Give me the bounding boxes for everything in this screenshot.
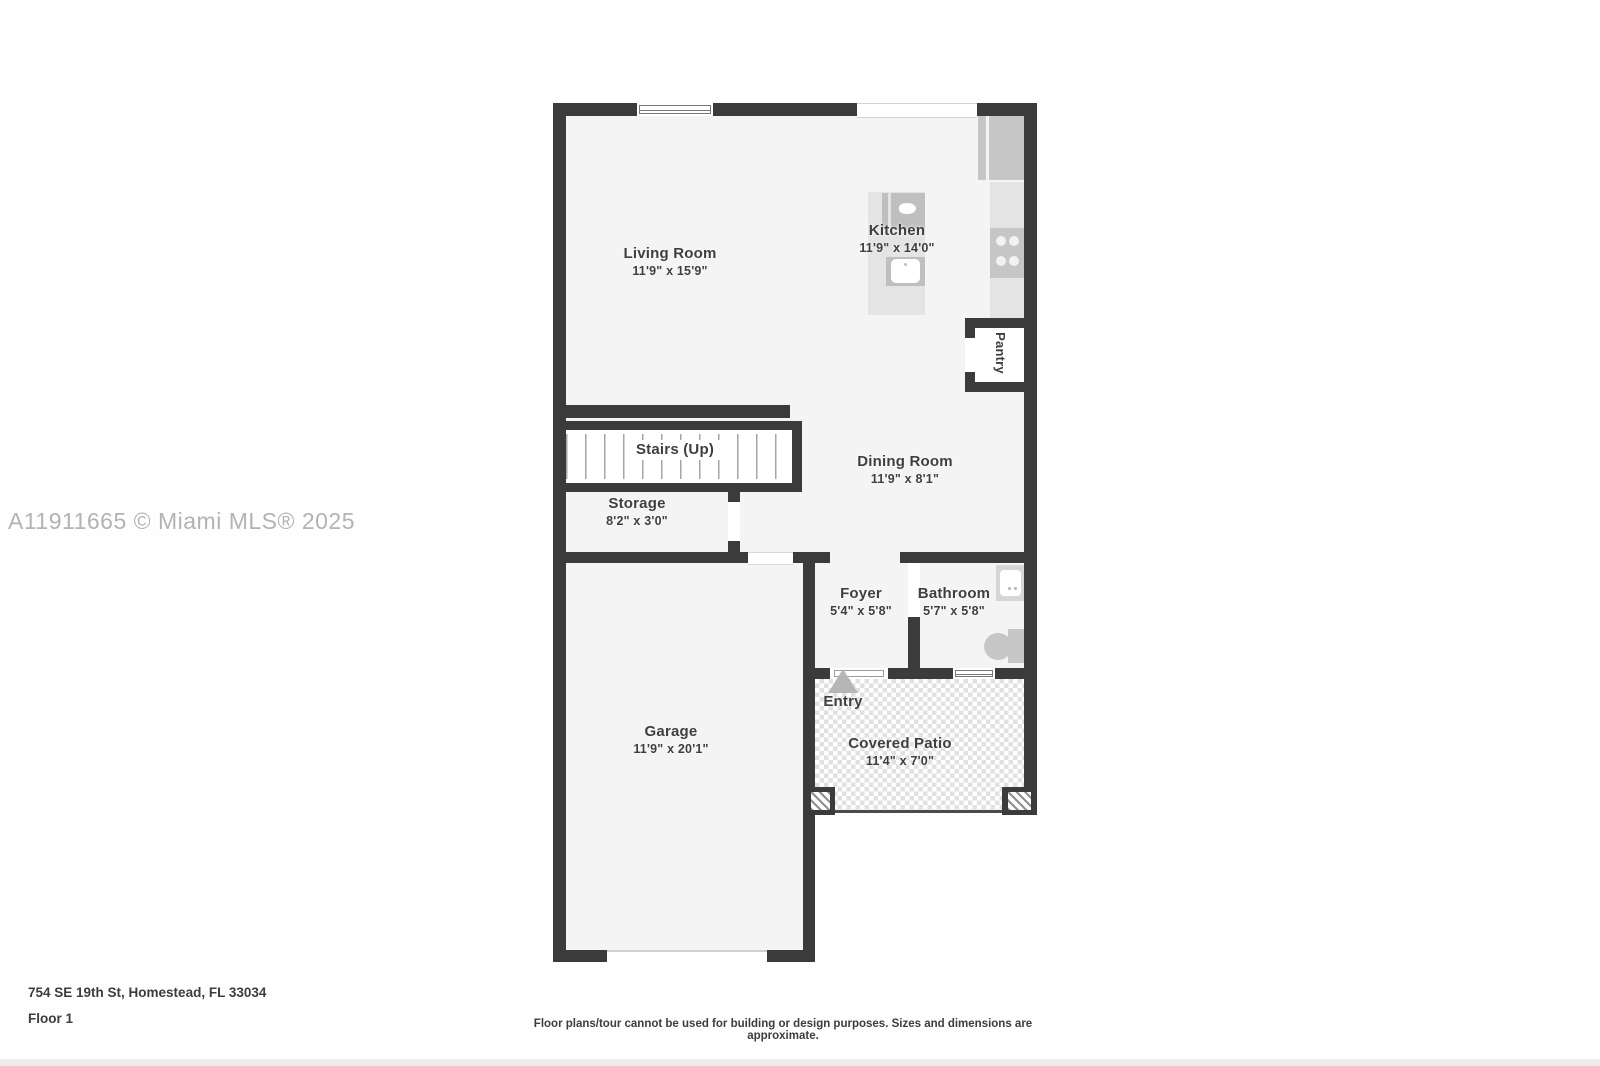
floor-number-label: Floor 1 [28, 1011, 73, 1026]
wall-garage-bottom-b [767, 950, 815, 962]
room-name: Covered Patio [848, 735, 951, 753]
stairs-label: Stairs (Up) [630, 440, 720, 460]
window-icon [955, 670, 993, 677]
living-room-label: Living Room 11'9" x 15'9" [623, 245, 716, 279]
entry-arrow-icon [828, 669, 858, 693]
room-name: Bathroom [918, 585, 990, 603]
refrigerator-door-fixture [978, 116, 986, 180]
sink-basin-icon [1000, 570, 1021, 596]
stove-fixture [990, 228, 1024, 278]
wall-living-bottom [553, 405, 790, 418]
bathroom-label: Bathroom 5'7" x 5'8" [918, 585, 990, 619]
window-icon [639, 105, 711, 114]
room-dims: 11'9" x 20'1" [633, 741, 708, 757]
faucet-dot-icon [1008, 587, 1011, 590]
disclaimer-text: Floor plans/tour cannot be used for buil… [533, 1018, 1033, 1042]
post-hatch-icon [1008, 792, 1031, 810]
entry-label: Entry [823, 693, 862, 711]
garage-label: Garage 11'9" x 20'1" [633, 723, 708, 757]
room-name: Pantry [992, 332, 1008, 374]
wall-bathroom-top [900, 552, 1037, 563]
bottom-edge-strip [0, 1059, 1600, 1066]
patio-post-right [1002, 787, 1037, 815]
room-name: Kitchen [859, 222, 934, 240]
wall-pantry-bottom [965, 382, 1037, 392]
burner-icon [1009, 256, 1019, 266]
faucet-dot-icon [1014, 587, 1017, 590]
room-name: Stairs (Up) [630, 440, 720, 460]
toilet-bowl-fixture [984, 633, 1012, 660]
bathroom-window-opening [953, 668, 995, 679]
kitchen-label: Kitchen 11'9" x 14'0" [859, 222, 934, 256]
room-dims: 11'9" x 15'9" [623, 263, 716, 279]
wall-garage-bottom-a [553, 950, 607, 962]
room-dims: 11'9" x 14'0" [859, 240, 934, 256]
covered-patio-label: Covered Patio 11'4" x 7'0" [848, 735, 951, 769]
burner-icon [996, 236, 1006, 246]
room-name: Foyer [830, 585, 892, 603]
sink-drain-icon [904, 263, 907, 266]
wall-right [1024, 103, 1037, 815]
burner-icon [1009, 236, 1019, 246]
floorplan-canvas: A11911665 © Miami MLS® 2025 [0, 0, 1600, 1066]
room-name: Living Room [623, 245, 716, 263]
wall-garage-top-a [553, 552, 748, 563]
pantry-label: Pantry [992, 332, 1008, 374]
wall-top-b [713, 103, 857, 116]
island-sink-fixture [886, 257, 925, 286]
post-hatch-icon [811, 792, 830, 810]
room-dims: 11'9" x 8'1" [857, 471, 953, 487]
patio-post-left [806, 787, 835, 815]
patio-edge-line [815, 810, 1024, 813]
pantry-door-opening [965, 338, 975, 372]
property-address: 754 SE 19th St, Homestead, FL 33034 [28, 985, 266, 1000]
wall-storage-a [728, 492, 740, 502]
garage-door-opening [607, 950, 767, 964]
kitchen-window-opening [857, 103, 977, 118]
room-dims: 5'4" x 5'8" [830, 603, 892, 619]
storage-label: Storage 8'2" x 3'0" [606, 495, 668, 529]
room-dims: 5'7" x 5'8" [918, 603, 990, 619]
wall-foyer-bath-divider [908, 617, 920, 668]
garage-entry-door-opening [748, 552, 793, 565]
room-name: Garage [633, 723, 708, 741]
room-dims: 11'4" x 7'0" [848, 753, 951, 769]
faucet-icon [899, 203, 916, 214]
refrigerator-fixture [989, 116, 1024, 180]
dining-foyer-opening-floor [830, 552, 900, 563]
bathroom-sink-fixture [996, 565, 1024, 601]
dining-room-label: Dining Room 11'9" x 8'1" [857, 453, 953, 487]
wall-pantry-top [965, 318, 1037, 328]
room-name: Storage [606, 495, 668, 513]
room-dims: 8'2" x 3'0" [606, 513, 668, 529]
wall-foyer-bottom-c [995, 668, 1037, 679]
foyer-label: Foyer 5'4" x 5'8" [830, 585, 892, 619]
storage-door-opening [728, 502, 740, 541]
burner-icon [996, 256, 1006, 266]
wall-pantry-left-b [965, 372, 975, 382]
window-opening [637, 103, 713, 116]
wall-left [553, 103, 566, 962]
wall-garage-right [803, 552, 815, 962]
room-name: Entry [823, 693, 862, 711]
mls-watermark: A11911665 © Miami MLS® 2025 [8, 508, 355, 535]
wall-pantry-left-a [965, 328, 975, 338]
room-name: Dining Room [857, 453, 953, 471]
wall-foyer-bottom-b [888, 668, 953, 679]
